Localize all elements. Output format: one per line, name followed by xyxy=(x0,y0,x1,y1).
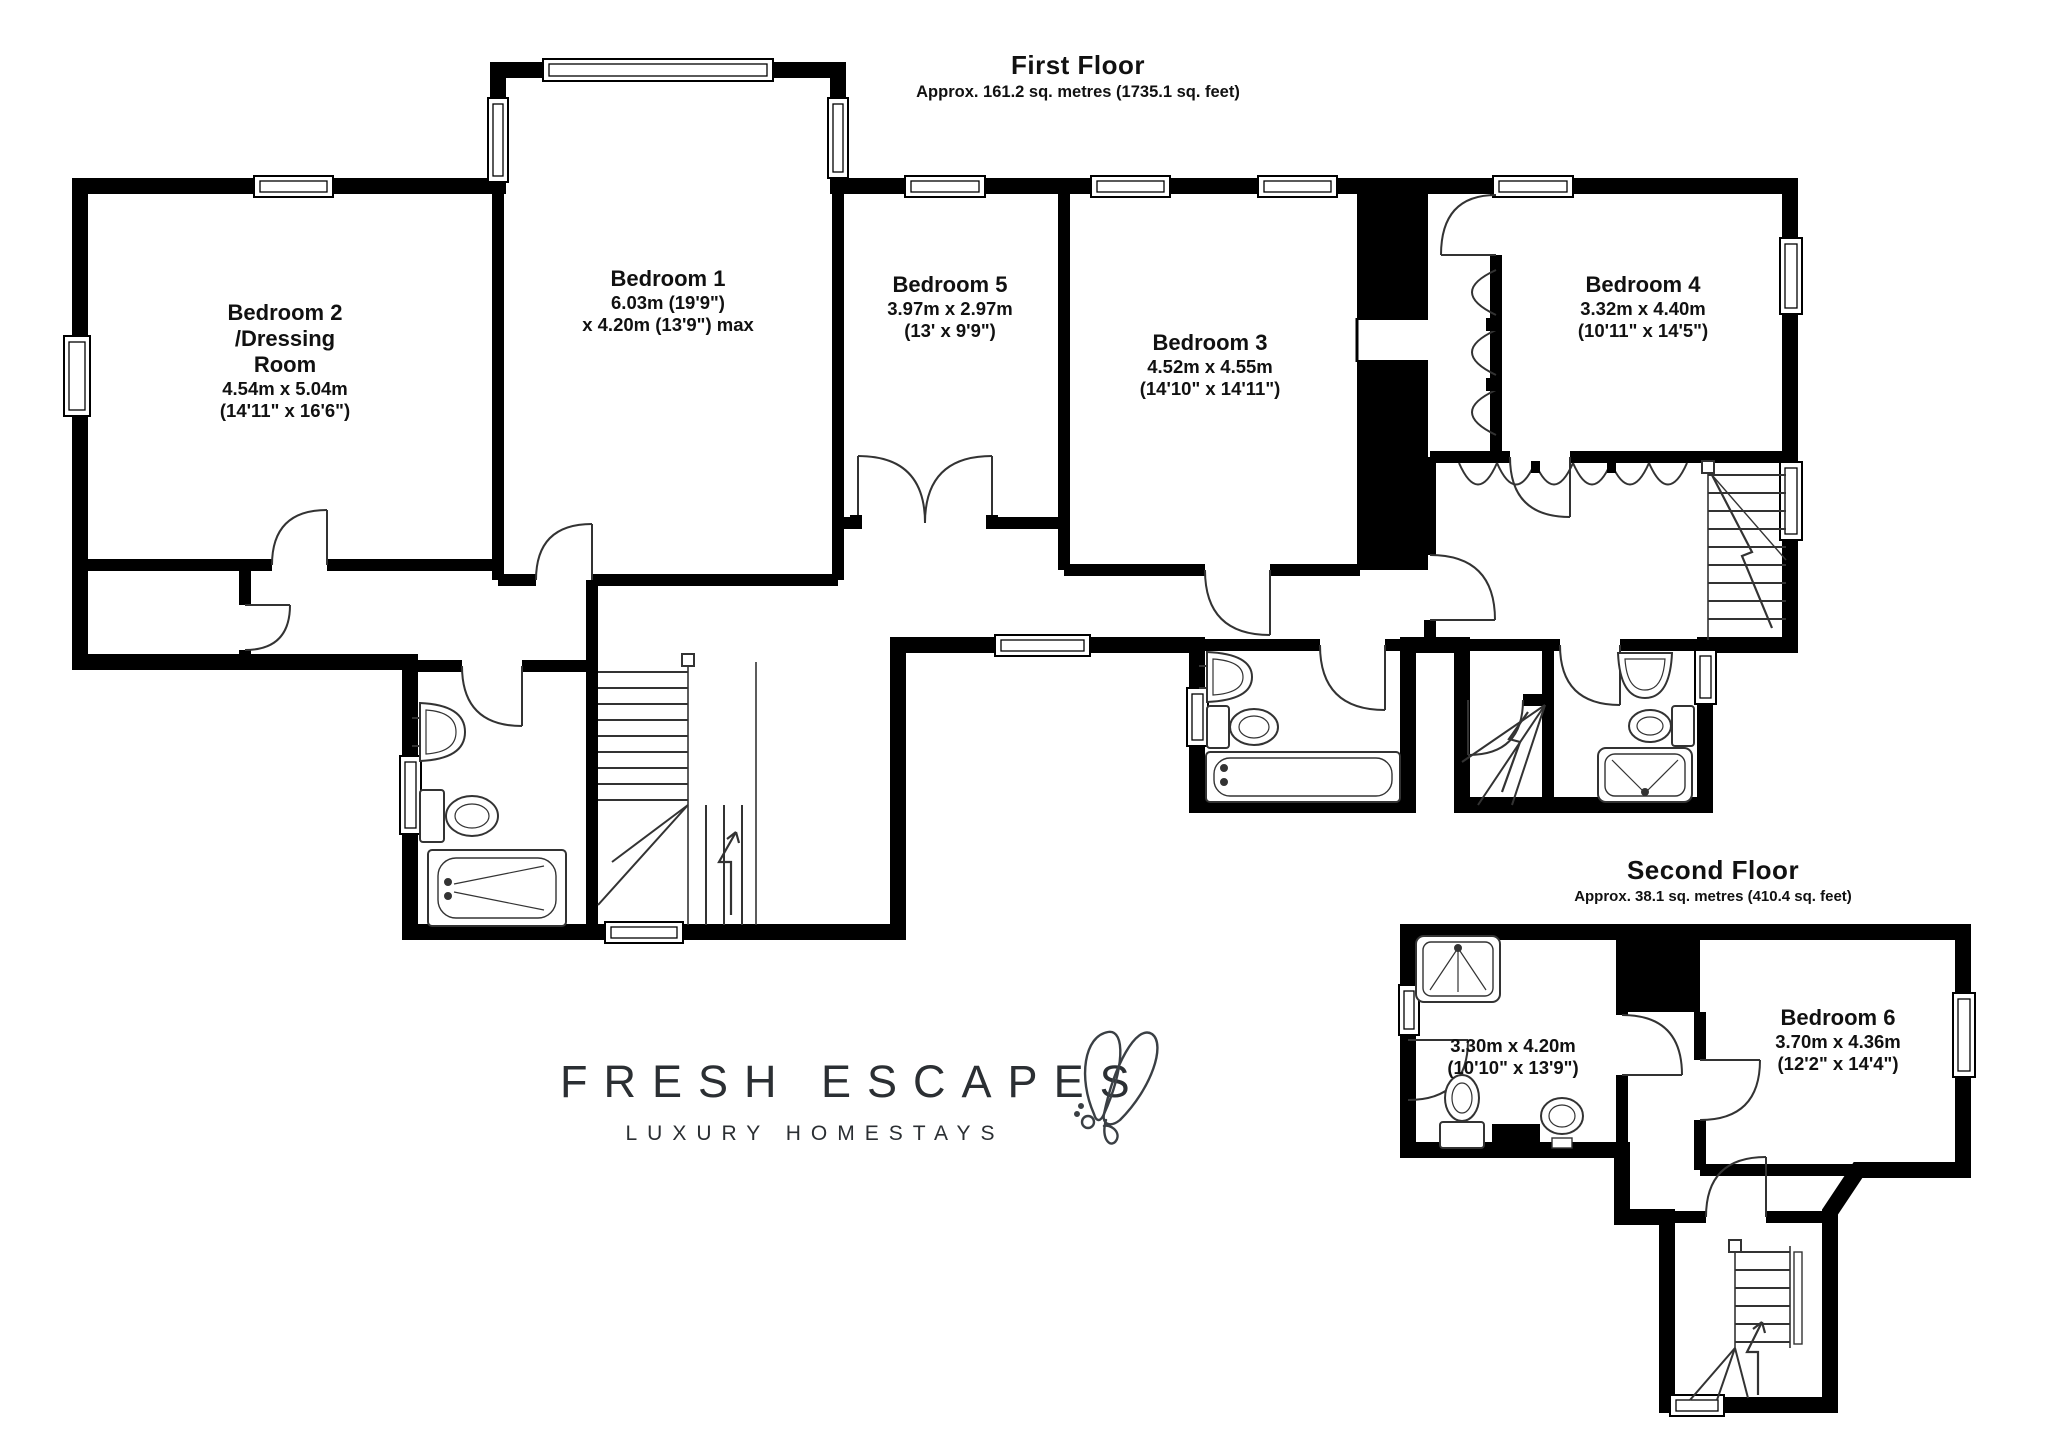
bedroom4-name: Bedroom 4 xyxy=(1523,272,1763,298)
sink-icon xyxy=(1541,1098,1583,1148)
butterfly-logo-icon xyxy=(1058,1022,1168,1152)
door-arc xyxy=(1320,645,1385,710)
bedroom5-dims-ft: (13' x 9'9") xyxy=(830,320,1070,342)
first-floor-outer-walls xyxy=(80,70,1790,932)
door-arc xyxy=(1205,570,1270,635)
shower-room-fixtures xyxy=(1598,653,1694,802)
first-floor-title: First Floor Approx. 161.2 sq. metres (17… xyxy=(878,50,1278,102)
bedroom5-dims-m: 3.97m x 2.97m xyxy=(830,298,1070,320)
door-arc xyxy=(462,666,522,726)
first-floor-subtitle-text: Approx. 161.2 sq. metres (1735.1 sq. fee… xyxy=(878,83,1278,102)
bedroom6-name: Bedroom 6 xyxy=(1718,1005,1958,1031)
bedroom1-name: Bedroom 1 xyxy=(518,266,818,292)
shower-icon xyxy=(1416,936,1500,1002)
chimney-breast xyxy=(1616,932,1700,1012)
bedroom5-name: Bedroom 5 xyxy=(830,272,1070,298)
second-floor-subtitle-text: Approx. 38.1 sq. metres (410.4 sq. feet) xyxy=(1513,888,1913,905)
sink-icon xyxy=(1618,653,1672,698)
bedroom2-name2: /Dressing xyxy=(130,326,440,352)
room-label-bedroom5: Bedroom 5 3.97m x 2.97m (13' x 9'9") xyxy=(830,272,1070,342)
second-floor-title: Second Floor Approx. 38.1 sq. metres (41… xyxy=(1513,855,1913,905)
second-bathroom-dims-m: 3.30m x 4.20m xyxy=(1408,1035,1618,1057)
bedroom1-dims-m: 6.03m (19'9") xyxy=(518,292,818,314)
room-label-bedroom2: Bedroom 2 /Dressing Room 4.54m x 5.04m (… xyxy=(130,300,440,422)
bedroom4-dims-m: 3.32m x 4.40m xyxy=(1523,298,1763,320)
door-arc xyxy=(925,456,992,523)
window-icon xyxy=(1258,176,1337,197)
bedroom6-dims-m: 3.70m x 4.36m xyxy=(1718,1031,1958,1053)
window-icon xyxy=(64,336,90,416)
window-icon xyxy=(905,176,985,197)
room-label-bedroom6: Bedroom 6 3.70m x 4.36m (12'2" x 14'4") xyxy=(1718,1005,1958,1075)
second-floor-staircase xyxy=(1690,1240,1802,1400)
window-icon xyxy=(995,635,1090,656)
bedroom3-dims-m: 4.52m x 4.55m xyxy=(1085,356,1335,378)
bedroom6-dims-ft: (12'2" x 14'4") xyxy=(1718,1053,1958,1075)
window-icon xyxy=(1187,688,1208,746)
bedroom2-name: Bedroom 2 xyxy=(130,300,440,326)
bathtub-icon xyxy=(1206,752,1400,802)
logo: FRESH ESCAPES LUXURY HOMESTAYS xyxy=(560,1056,1070,1146)
room-label-bedroom1: Bedroom 1 6.03m (19'9") x 4.20m (13'9") … xyxy=(518,266,818,336)
room-label-second-bathroom: 3.30m x 4.20m (10'10" x 13'9") xyxy=(1408,1035,1618,1079)
window-icon xyxy=(1780,238,1802,314)
floorplan-page: { "floors": { "first": { "title": "First… xyxy=(0,0,2048,1439)
sink-icon xyxy=(1199,652,1252,702)
wardrobe-doors xyxy=(1459,461,1687,485)
bedroom3-name: Bedroom 3 xyxy=(1085,330,1335,356)
sink-icon xyxy=(412,703,465,761)
bedroom2-dims-m: 4.54m x 5.04m xyxy=(130,378,440,400)
bathtub-icon xyxy=(428,850,566,926)
window-icon xyxy=(1091,176,1170,197)
first-floor-title-text: First Floor xyxy=(878,50,1278,81)
bedroom1-dims-ft: x 4.20m (13'9") max xyxy=(518,314,818,336)
door-arc xyxy=(1560,645,1620,705)
window-icon xyxy=(1493,176,1573,197)
logo-brand-text: FRESH ESCAPES xyxy=(560,1056,1070,1108)
toilet-icon xyxy=(1440,1075,1484,1148)
window-icon xyxy=(254,176,333,197)
window-icon xyxy=(400,756,421,834)
second-floor-title-text: Second Floor xyxy=(1513,855,1913,886)
bedroom3-dims-ft: (14'10" x 14'11") xyxy=(1085,378,1335,400)
window-icon xyxy=(1695,650,1716,704)
bathroom-a-fixtures xyxy=(412,703,566,926)
bedroom2-dims-ft: (14'11" x 16'6") xyxy=(130,400,440,422)
main-staircase xyxy=(598,654,756,925)
door-arc xyxy=(245,605,290,650)
door-arc xyxy=(1441,195,1496,255)
door-arc xyxy=(272,510,327,565)
floor-plan-drawing xyxy=(0,0,2048,1439)
toilet-icon xyxy=(420,790,498,842)
door-arc xyxy=(536,524,592,580)
room-label-bedroom3: Bedroom 3 4.52m x 4.55m (14'10" x 14'11"… xyxy=(1085,330,1335,400)
toilet-icon xyxy=(1629,706,1694,746)
chimney-breast xyxy=(1357,190,1428,570)
bedroom2-name3: Room xyxy=(130,352,440,378)
vanity-unit xyxy=(1492,1124,1540,1148)
landing-staircase xyxy=(1702,461,1786,640)
shower-icon xyxy=(1598,748,1692,802)
door-arc xyxy=(1622,1015,1682,1075)
window-icon xyxy=(1670,1395,1724,1416)
logo-tagline-text: LUXURY HOMESTAYS xyxy=(560,1122,1070,1146)
second-bathroom-dims-ft: (10'10" x 13'9") xyxy=(1408,1057,1618,1079)
window-icon xyxy=(488,98,508,182)
door-arc xyxy=(1430,555,1495,620)
middle-bathroom-fixtures xyxy=(1199,652,1400,802)
toilet-icon xyxy=(1207,706,1278,748)
door-arc xyxy=(1468,700,1523,755)
room-label-bedroom4: Bedroom 4 3.32m x 4.40m (10'11" x 14'5") xyxy=(1523,272,1763,342)
window-icon xyxy=(543,59,773,81)
window-icon xyxy=(828,98,848,178)
door-arc xyxy=(858,456,925,523)
window-icon xyxy=(605,922,683,943)
first-floor-plan xyxy=(64,59,1802,943)
bedroom4-dims-ft: (10'11" x 14'5") xyxy=(1523,320,1763,342)
